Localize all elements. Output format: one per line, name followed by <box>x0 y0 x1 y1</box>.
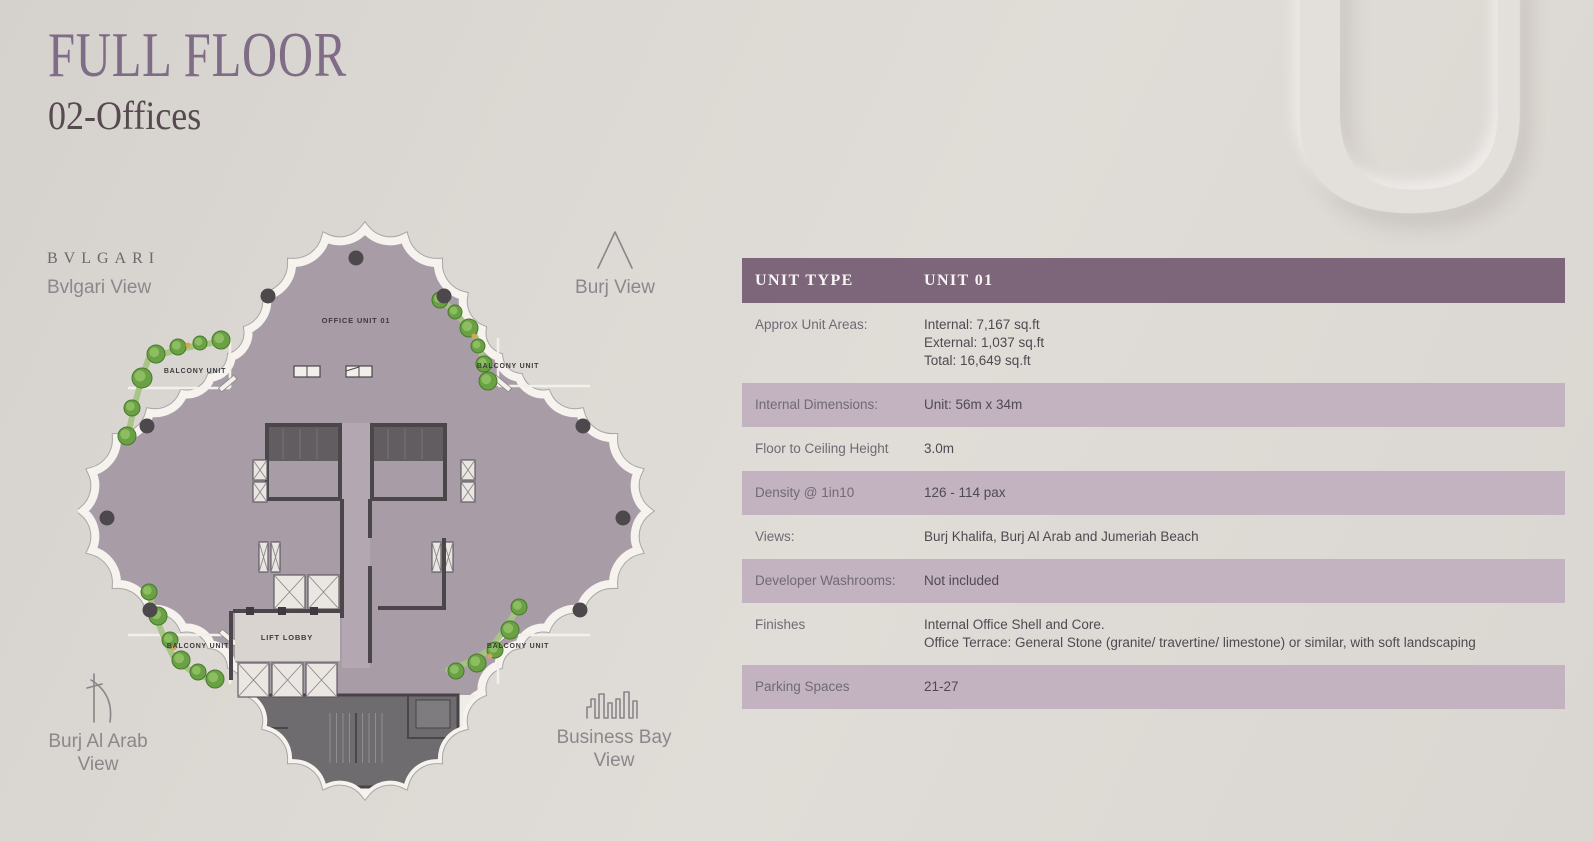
row-value: Internal Office Shell and Core. Office T… <box>924 616 1551 652</box>
table-row: Views:Burj Khalifa, Burj Al Arab and Jum… <box>742 515 1565 559</box>
row-label: Internal Dimensions: <box>755 396 924 414</box>
row-value: Not included <box>924 572 1551 590</box>
service-core <box>166 695 528 790</box>
table-row: Parking Spaces21-27 <box>742 665 1565 709</box>
balcony-unit-label-se: BALCONY UNIT <box>487 643 549 650</box>
balcony-unit-label-ne: BALCONY UNIT <box>477 363 539 370</box>
floor-plan: OFFICE UNIT 01 BALCONY UNIT BALCONY UNIT… <box>78 208 678 808</box>
table-header-unit-01: UNIT 01 <box>924 272 1551 290</box>
row-label: Floor to Ceiling Height <box>755 440 924 458</box>
row-label: Developer Washrooms: <box>755 572 924 590</box>
row-label: Finishes <box>755 616 924 652</box>
table-row: Approx Unit Areas:Internal: 7,167 sq.ft … <box>742 303 1565 383</box>
row-value: Burj Khalifa, Burj Al Arab and Jumeriah … <box>924 528 1551 546</box>
table-header: UNIT TYPE UNIT 01 <box>742 258 1565 303</box>
row-value: 21-27 <box>924 678 1551 696</box>
brochure-page: U FULL FLOOR 02-Offices BVLGARI Bvlgari … <box>0 0 1593 841</box>
table-row: Developer Washrooms:Not included <box>742 559 1565 603</box>
table-row: Internal Dimensions:Unit: 56m x 34m <box>742 383 1565 427</box>
table-body: Approx Unit Areas:Internal: 7,167 sq.ft … <box>742 303 1565 709</box>
watermark-letter: U <box>1254 0 1565 280</box>
unit-spec-table: UNIT TYPE UNIT 01 Approx Unit Areas:Inte… <box>742 258 1565 709</box>
lift-lobby-label: LIFT LOBBY <box>261 633 313 642</box>
row-value: 3.0m <box>924 440 1551 458</box>
page-subtitle: 02-Offices <box>48 92 201 139</box>
table-row: Floor to Ceiling Height3.0m <box>742 427 1565 471</box>
row-label: Density @ 1in10 <box>755 484 924 502</box>
balcony-unit-label-nw: BALCONY UNIT <box>164 368 226 375</box>
table-header-unit-type: UNIT TYPE <box>755 272 924 290</box>
page-title: FULL FLOOR <box>48 18 347 92</box>
row-value: Unit: 56m x 34m <box>924 396 1551 414</box>
table-row: FinishesInternal Office Shell and Core. … <box>742 603 1565 665</box>
row-label: Parking Spaces <box>755 678 924 696</box>
row-label: Approx Unit Areas: <box>755 316 924 370</box>
row-value: Internal: 7,167 sq.ft External: 1,037 sq… <box>924 316 1551 370</box>
balcony-unit-label-sw: BALCONY UNIT <box>167 643 229 650</box>
row-value: 126 - 114 pax <box>924 484 1551 502</box>
row-label: Views: <box>755 528 924 546</box>
table-row: Density @ 1in10126 - 114 pax <box>742 471 1565 515</box>
office-unit-label: OFFICE UNIT 01 <box>322 316 391 325</box>
